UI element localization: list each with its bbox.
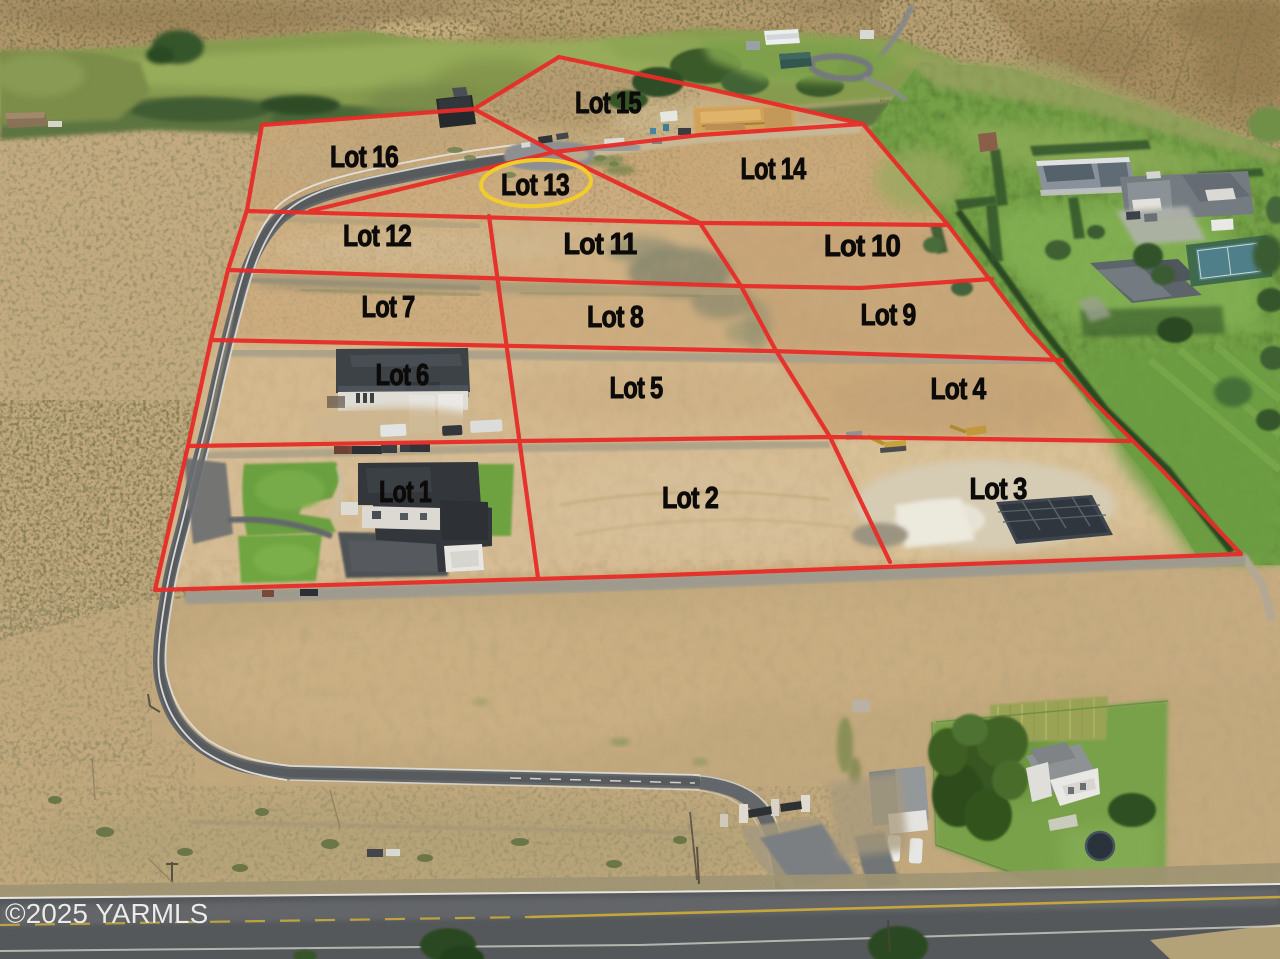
svg-text:Lot 7: Lot 7: [362, 289, 415, 324]
svg-text:Lot 10: Lot 10: [824, 228, 900, 263]
svg-text:Lot 11: Lot 11: [564, 226, 638, 261]
svg-text:©2025 YARMLS: ©2025 YARMLS: [5, 898, 208, 929]
svg-text:Lot 13: Lot 13: [501, 167, 570, 202]
svg-text:Lot 5: Lot 5: [610, 370, 664, 405]
svg-text:Lot 6: Lot 6: [376, 357, 430, 392]
svg-text:Lot 12: Lot 12: [343, 218, 411, 253]
svg-text:Lot 4: Lot 4: [931, 371, 987, 406]
svg-text:Lot 3: Lot 3: [970, 471, 1028, 506]
svg-text:Lot 2: Lot 2: [662, 480, 718, 515]
svg-text:Lot 9: Lot 9: [861, 297, 917, 332]
svg-text:Lot 8: Lot 8: [587, 299, 644, 334]
svg-text:Lot 1: Lot 1: [379, 474, 432, 509]
svg-text:Lot 15: Lot 15: [575, 85, 642, 120]
svg-text:Lot 14: Lot 14: [741, 151, 807, 186]
svg-text:Lot 16: Lot 16: [330, 139, 399, 174]
